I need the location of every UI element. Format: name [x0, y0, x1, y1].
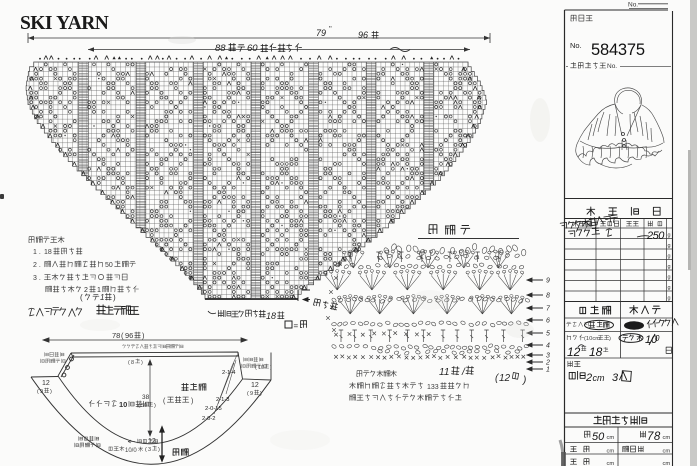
- svg-text:2: 2: [545, 360, 550, 367]
- svg-text:1: 1: [100, 293, 104, 302]
- svg-text:2-0-15: 2-0-15: [205, 406, 222, 412]
- svg-text:'': '': [329, 26, 332, 33]
- svg-text:0: 0: [655, 334, 660, 343]
- svg-text:7: 7: [546, 306, 551, 313]
- svg-text:(: (: [128, 360, 130, 366]
- svg-text:g: g: [668, 243, 671, 249]
- svg-text:3: 3: [612, 372, 619, 384]
- svg-text:18: 18: [589, 345, 603, 359]
- svg-text:10: 10: [119, 400, 127, 409]
- svg-text:4: 4: [546, 343, 550, 350]
- svg-text:8: 8: [546, 293, 550, 300]
- svg-text:(: (: [138, 403, 140, 409]
- svg-text:No.: No.: [607, 63, 617, 70]
- svg-text:8: 8: [131, 360, 134, 366]
- svg-text:10/0: 10/0: [125, 448, 137, 454]
- svg-text:(: (: [163, 398, 166, 405]
- svg-text:g: g: [668, 275, 671, 281]
- svg-text:3: 3: [546, 353, 550, 360]
- svg-text:9: 9: [250, 391, 253, 397]
- svg-text:g: g: [668, 264, 671, 270]
- svg-text:2 .: 2 .: [33, 262, 41, 269]
- svg-text:cm: cm: [593, 373, 606, 383]
- svg-text:): ): [50, 389, 52, 395]
- svg-text:584375: 584375: [591, 41, 645, 59]
- svg-text:6: 6: [546, 318, 550, 325]
- svg-text:2: 2: [84, 287, 88, 294]
- svg-text:133: 133: [427, 384, 439, 391]
- svg-text:9: 9: [40, 389, 43, 395]
- svg-text:): ): [522, 375, 526, 386]
- svg-text:78: 78: [647, 431, 661, 443]
- svg-text:2-1-4: 2-1-4: [222, 370, 236, 376]
- svg-text:50: 50: [105, 262, 113, 269]
- svg-text:): ): [142, 331, 145, 340]
- svg-text:=: =: [294, 322, 299, 331]
- svg-text:60: 60: [247, 43, 258, 54]
- svg-text:11: 11: [439, 367, 449, 378]
- svg-text:No.: No.: [628, 2, 638, 9]
- svg-text:50: 50: [592, 431, 605, 443]
- svg-text:2-0-2: 2-0-2: [202, 416, 216, 422]
- svg-text:cm: cm: [607, 461, 615, 466]
- svg-text:(: (: [145, 447, 147, 453]
- svg-text:18: 18: [266, 311, 276, 321]
- svg-text:g: g: [668, 285, 671, 291]
- svg-text:): ): [141, 360, 143, 366]
- svg-text:/: /: [461, 367, 466, 378]
- svg-text:12: 12: [499, 373, 511, 384]
- svg-text:g: g: [668, 296, 671, 302]
- svg-text:2-1-3: 2-1-3: [216, 397, 230, 403]
- svg-text:78: 78: [112, 331, 120, 340]
- svg-text:12: 12: [148, 438, 156, 445]
- svg-text:No.: No.: [570, 41, 582, 50]
- svg-text:g: g: [668, 233, 671, 239]
- svg-text:12: 12: [567, 345, 581, 359]
- svg-text:9: 9: [546, 278, 550, 285]
- svg-text:(: (: [247, 391, 249, 397]
- svg-text:79: 79: [316, 28, 326, 38]
- svg-text:cm: cm: [663, 461, 671, 466]
- svg-text:12: 12: [42, 380, 50, 387]
- svg-text:SKI YARN: SKI YARN: [20, 13, 109, 34]
- svg-text:2: 2: [585, 372, 592, 384]
- svg-text:3: 3: [148, 447, 151, 453]
- svg-text:g: g: [668, 254, 671, 260]
- svg-text:): ): [154, 403, 156, 409]
- svg-text:(: (: [37, 389, 39, 395]
- svg-text:): ): [609, 336, 611, 342]
- svg-text:1 .: 1 .: [33, 249, 41, 256]
- svg-text:cm: cm: [663, 435, 671, 441]
- svg-text:96: 96: [358, 30, 368, 40]
- svg-text:(: (: [121, 331, 124, 340]
- svg-text:(10cm: (10cm: [584, 336, 600, 342]
- svg-text:38: 38: [142, 394, 150, 401]
- svg-text:(: (: [80, 293, 83, 302]
- svg-text:cm: cm: [607, 435, 615, 441]
- svg-text:): ): [158, 447, 160, 453]
- svg-text:1: 1: [546, 367, 550, 374]
- svg-text:): ): [191, 398, 193, 405]
- svg-text:18: 18: [44, 249, 52, 256]
- svg-text:96: 96: [125, 331, 133, 340]
- svg-text:5: 5: [546, 331, 550, 338]
- svg-text:): ): [113, 293, 116, 302]
- svg-text:): ): [260, 391, 262, 397]
- svg-text:12: 12: [251, 382, 259, 389]
- svg-text:88: 88: [215, 43, 226, 54]
- svg-text:250: 250: [646, 230, 665, 242]
- svg-text:3 .: 3 .: [33, 275, 41, 282]
- svg-text:): ): [270, 365, 272, 371]
